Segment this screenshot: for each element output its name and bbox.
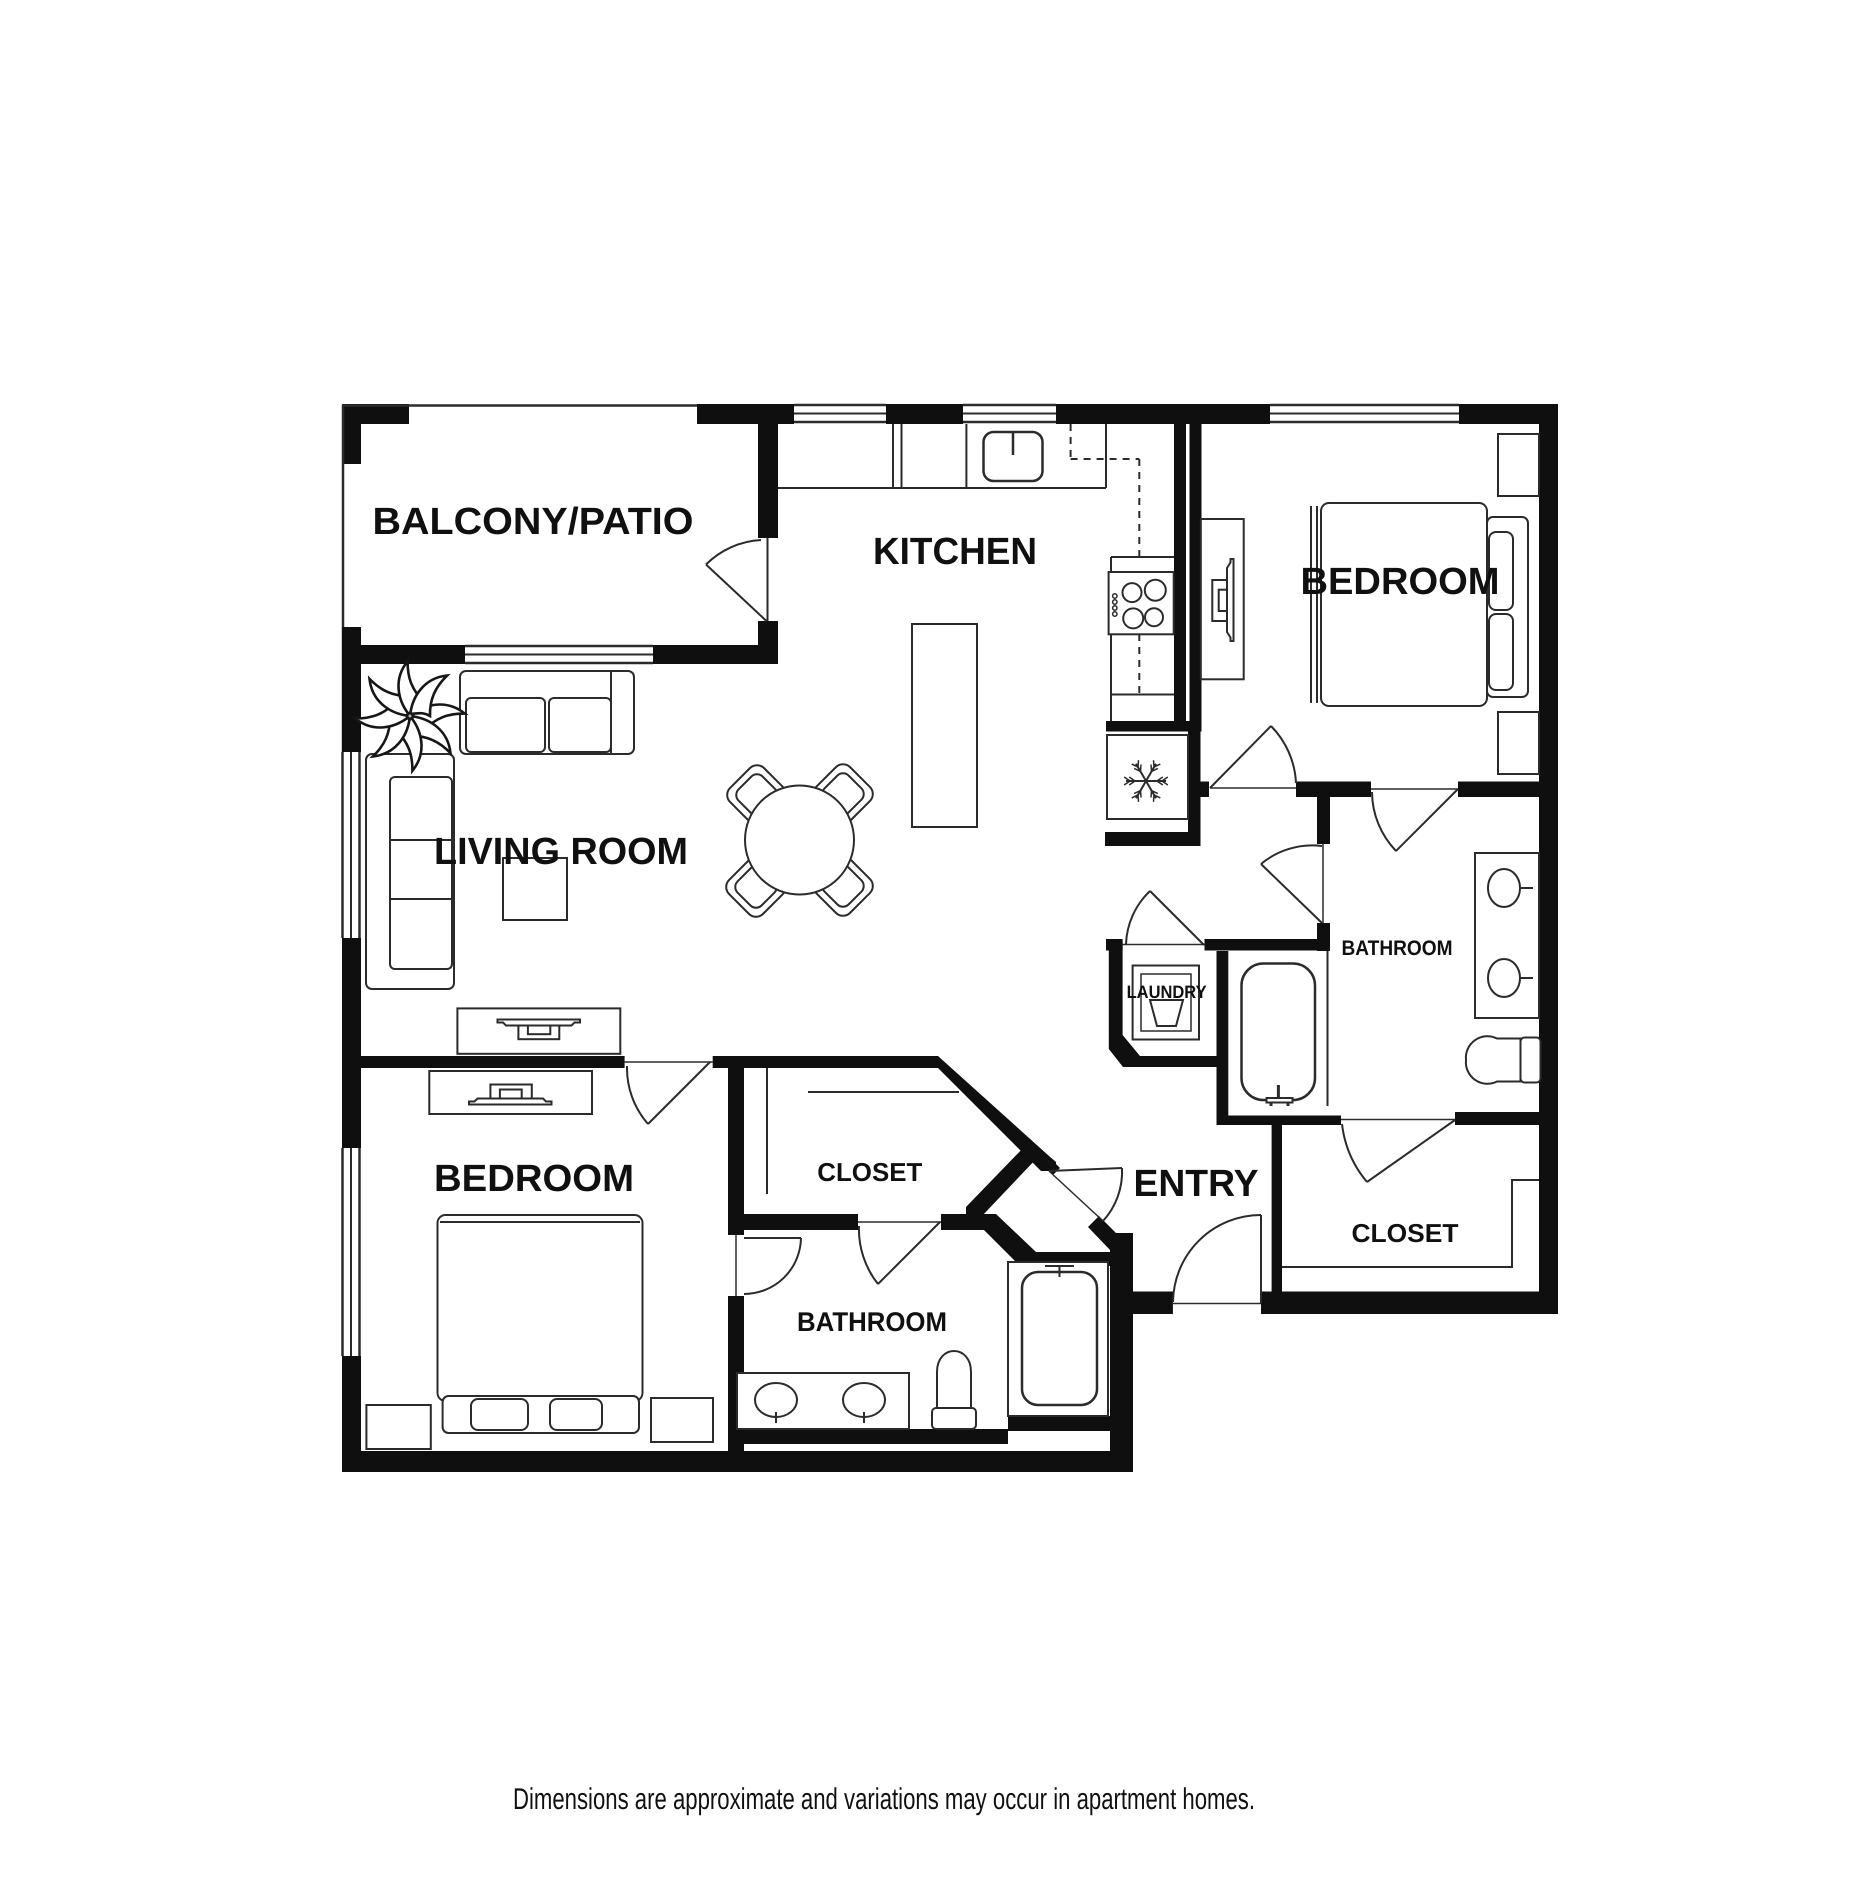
svg-text:LIVING ROOM: LIVING ROOM [434, 831, 688, 873]
svg-text:BEDROOM: BEDROOM [1301, 561, 1500, 603]
svg-text:BALCONY/PATIO: BALCONY/PATIO [373, 501, 694, 543]
svg-text:CLOSET: CLOSET [1352, 1218, 1459, 1248]
svg-text:CLOSET: CLOSET [817, 1157, 922, 1187]
svg-text:BATHROOM: BATHROOM [797, 1307, 947, 1337]
svg-text:BATHROOM: BATHROOM [1342, 937, 1453, 960]
svg-text:LAUNDRY: LAUNDRY [1127, 982, 1207, 1002]
svg-text:ENTRY: ENTRY [1134, 1163, 1259, 1205]
svg-text:Dimensions are approximate and: Dimensions are approximate and variation… [513, 1783, 1255, 1816]
svg-text:BEDROOM: BEDROOM [434, 1158, 634, 1200]
svg-text:KITCHEN: KITCHEN [873, 531, 1037, 573]
